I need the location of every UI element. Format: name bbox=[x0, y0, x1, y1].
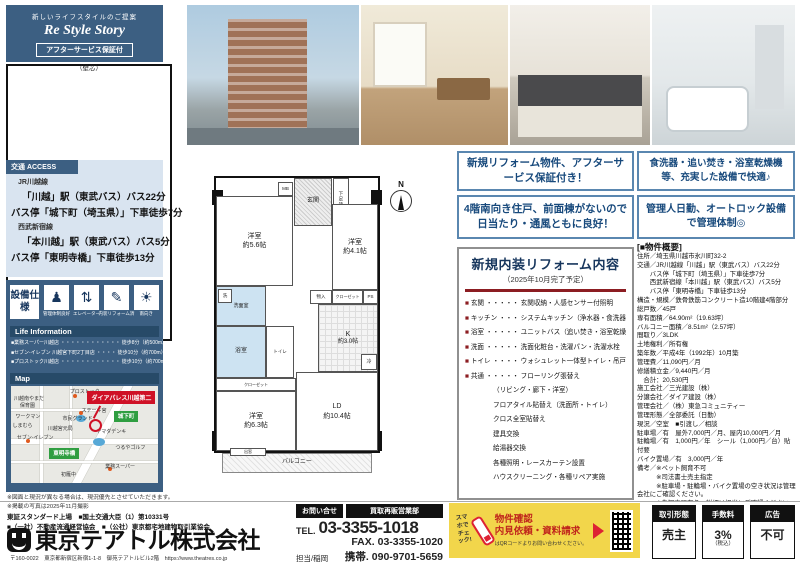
qr-text-line3: はQRコードよりお問い合わせください。 bbox=[495, 540, 587, 547]
reform-items: 玄関 ・・・・・ 玄関収納・人感センサー付照明キッチン ・・・ システムキッチン… bbox=[465, 297, 626, 380]
overview-title: [■物件概要] bbox=[637, 241, 796, 253]
compass: N bbox=[388, 180, 414, 212]
overview-line: ※駐車場・駐輪場・バイク置場の空き状況は管理会社にご確認ください。 bbox=[637, 483, 796, 501]
overview-line: 駐輪場／有 1,000円／年 シール（1,000円／台）貼付要 bbox=[637, 438, 796, 456]
department-label: 買取再販営業部 bbox=[346, 504, 443, 518]
photo-exterior-building bbox=[228, 19, 307, 128]
deal-type-box: 取引形態 売主 bbox=[652, 505, 696, 559]
equipment-label: 内装リフォーム済 bbox=[99, 311, 135, 317]
equipment-tile: ☀ 南向き bbox=[133, 285, 159, 317]
access-line: バス停「城下町（埼玉県）」下車徒歩7分 bbox=[6, 205, 163, 219]
map-notes: ※図面と現況が異なる場合は、現況優先とさせていただきます。※掲載の写真は2025… bbox=[7, 494, 297, 511]
access-box: 交通 ACCESS JR川越線 「川越」駅（東武バス）バス22分 バス停「城下町… bbox=[6, 160, 163, 277]
bay-window: 出窓 bbox=[230, 448, 266, 456]
equipment-tile: ⇅ エレベーター bbox=[73, 285, 99, 317]
photo-exterior-road bbox=[187, 128, 359, 145]
equipment-title: 設備仕様 bbox=[10, 285, 39, 319]
elevator-icon: ⇅ bbox=[74, 285, 99, 310]
qr-text-line1: 物件確認 bbox=[495, 514, 587, 526]
map-property-label: ダイアパレス川越第二 bbox=[87, 391, 155, 404]
reform-box: 新規内装リフォーム内容 （2025年10月完了予定） 玄関 ・・・・・ 玄関収納… bbox=[457, 247, 634, 500]
reform-extras: （リビング・廊下・洋室）フロアタイル貼替え（洗面所・トイレ）クロス全室貼替え建具… bbox=[465, 384, 626, 481]
overview-line: 総戸数／45戸 bbox=[637, 306, 796, 315]
floor-plan: 玄関 MB 下足箱 洋室約5.6帖 洋室約4.1帖 物入 クローゼット PS 洗… bbox=[214, 176, 382, 476]
flyer-page: 新しいライフスタイルのご提案 Re Style Story アフターサービス保証… bbox=[0, 0, 800, 565]
logo-eye bbox=[12, 533, 16, 538]
smartphone-icon bbox=[470, 515, 496, 547]
equipment-row: 設備仕様 ♟ 管理体制良好 ⇅ エレベーター ✎ 内装リフォーム済 ☀ 南向き bbox=[6, 280, 163, 321]
access-title: 交通 ACCESS bbox=[6, 160, 78, 174]
room-mb: MB bbox=[278, 182, 293, 196]
tel-number: 03-3355-1018 bbox=[319, 519, 419, 536]
room-ps: PS bbox=[363, 290, 378, 304]
photo-bathroom bbox=[652, 5, 795, 145]
logo-eye bbox=[22, 533, 26, 538]
brand-name: Re Style Story bbox=[6, 23, 163, 39]
room-storage: 物入 bbox=[310, 290, 332, 304]
reform-divider bbox=[465, 289, 626, 292]
overview-line: 現況／空室 ■引渡し／相談 bbox=[637, 421, 796, 430]
compass-n: N bbox=[388, 180, 414, 189]
access-line-pre: 西武新宿線 bbox=[6, 222, 163, 232]
company-logo-icon bbox=[7, 528, 31, 552]
life-info-list: ■業務スーパー川越店 ・・・・・・・・・・・・ 徒歩8分（約500m）■セブン-… bbox=[6, 339, 163, 368]
qr-code bbox=[610, 510, 633, 552]
life-info-item: ■業務スーパー川越店 ・・・・・・・・・・・・ 徒歩8分（約500m） bbox=[6, 339, 163, 349]
overview-box: [■物件概要] 住所／埼玉県川越市氷川町32-2交通／JR川越線「川越」駅（東武… bbox=[637, 241, 796, 501]
advertising-value: 不可 bbox=[751, 529, 794, 541]
balcony: バルコニー bbox=[222, 453, 372, 473]
commission-note: （税込） bbox=[703, 541, 743, 549]
brand-box: 新しいライフスタイルのご提案 Re Style Story アフターサービス保証… bbox=[6, 5, 163, 62]
company-logo-row: 東京テアトル株式会社 bbox=[7, 528, 260, 552]
access-line: バス停「東明寺橋」下車徒歩13分 bbox=[6, 250, 163, 264]
photo-living-window bbox=[373, 22, 427, 88]
reform-extra-item: クロス全室貼替え bbox=[493, 413, 626, 423]
highlight-box-1: 新規リフォーム物件、アフターサービス保証付き！ bbox=[457, 151, 634, 191]
photo-exterior bbox=[187, 5, 359, 145]
overview-line: バス停「東明寺橋」下車徒歩13分 bbox=[637, 288, 796, 297]
overview-line: 管理費／11,090円／月 bbox=[637, 359, 796, 368]
pillar bbox=[371, 190, 382, 205]
map-landmark: つるやゴルフ bbox=[115, 444, 145, 451]
overview-line: 交通／JR川越線「川越」駅（東武バス）バス22分 bbox=[637, 262, 796, 271]
deal-type-label: 取引形態 bbox=[653, 506, 695, 522]
area-map: プロストック川越南やまだ保育園ステーキ宮ワークマンしまむらセブン-イレブン川越宮… bbox=[11, 386, 158, 483]
map-landmark: 保育園 bbox=[20, 402, 35, 409]
map-landmark: しまむら bbox=[12, 422, 32, 429]
access-line-pre: JR川越線 bbox=[6, 177, 163, 187]
overview-line: 施工会社／三光建設（株） bbox=[637, 385, 796, 394]
manager-icon: ♟ bbox=[44, 285, 69, 310]
map-landmark: 初雁中 bbox=[61, 471, 76, 478]
map-title: Map bbox=[10, 373, 159, 384]
commission-box: 手数料 3% （税込） bbox=[702, 505, 744, 559]
deal-type-value: 売主 bbox=[653, 529, 695, 541]
overview-line: 備考／※ペット飼育不可 bbox=[637, 465, 796, 474]
fax-label: FAX. bbox=[351, 536, 374, 548]
photo-living bbox=[361, 5, 508, 145]
map-bus-stop: 東明寺橋 bbox=[49, 448, 79, 459]
advertising-box: 広告 不可 bbox=[750, 505, 795, 559]
mobile-label: 携帯. bbox=[345, 551, 369, 563]
reform-extra-item: 建具交換 bbox=[493, 428, 626, 438]
room-washer: 洗 bbox=[218, 289, 232, 303]
highlight-box-2: 4階南向き住戸、前面棟がないので日当たり・通風ともに良好！ bbox=[457, 195, 634, 239]
map-landmark: セブン-イレブン bbox=[17, 434, 54, 441]
access-line: 「川越」駅（東武バス）バス22分 bbox=[6, 189, 163, 203]
reform-item: トイレ ・・・・ ウォシュレット一体型トイレ・吊戸棚 bbox=[465, 355, 626, 365]
life-info-item: ■セブン-イレブン 川越宮下町2丁目店 ・・・・ 徒歩10分（約700m） bbox=[6, 349, 163, 359]
note-line: ※掲載の写真は2025年11月撮影 bbox=[7, 503, 297, 512]
reform-item: 洗面 ・・・・・ 洗面化粧台・洗濯パン・洗濯水栓 bbox=[465, 341, 626, 351]
room-closet-2: クローゼット bbox=[216, 378, 296, 391]
listing-line: 東証スタンダード上場 ■国土交通大臣（1）第10331号 bbox=[7, 513, 307, 523]
property-spec: 3LDK 64.90 （壁芯） m² bbox=[6, 130, 163, 156]
property-name-box: ダイアパレス川越第二 3LDK 64.90 （壁芯） m² bbox=[6, 64, 163, 148]
commission-label: 手数料 bbox=[703, 506, 743, 522]
logo-mouth bbox=[12, 540, 26, 550]
life-info-title: Life Information bbox=[10, 326, 159, 337]
reform-extra-item: ハウスクリーニング・各種リペア実施 bbox=[493, 471, 626, 481]
reform-icon: ✎ bbox=[104, 285, 129, 310]
room-western-4-1: 洋室約4.1帖 bbox=[332, 204, 378, 290]
reform-item: 共通 ・・・・・ フローリング張替え bbox=[465, 370, 626, 380]
facility-panel: 設備仕様 ♟ 管理体制良好 ⇅ エレベーター ✎ 内装リフォーム済 ☀ 南向き … bbox=[6, 280, 163, 492]
compass-ring bbox=[390, 190, 412, 212]
reform-item: キッチン ・・・ システムキッチン（浄水器・食洗器付） bbox=[465, 312, 626, 322]
smartphone-check-text: スマホで チェック! bbox=[454, 514, 473, 547]
room-western-5-6: 洋室約5.6帖 bbox=[216, 196, 293, 286]
overview-line: 西武新宿線「本川越」駅（東武バス）バス5分 bbox=[637, 279, 796, 288]
overview-line: 構造・規模／鉄骨鉄筋コンクリート造10階建4階部分 bbox=[637, 297, 796, 306]
map-bus-stop: 城下町 bbox=[114, 411, 139, 422]
reform-subtitle: （2025年10月完了予定） bbox=[465, 274, 626, 285]
room-closet: クローゼット bbox=[332, 290, 363, 304]
after-service-badge: アフターサービス保証付 bbox=[36, 43, 133, 57]
map-landmark: 業務スーパー bbox=[105, 463, 135, 470]
commission-value: 3% bbox=[703, 529, 743, 541]
equipment-tile: ✎ 内装リフォーム済 bbox=[103, 285, 129, 317]
reform-item: 浴室 ・・・・・ ユニットバス（追い焚き・浴室乾燥機付） bbox=[465, 326, 626, 336]
arrow-right-icon bbox=[593, 523, 604, 539]
overview-line: 管理会社／（株）東急コミュニティー bbox=[637, 403, 796, 412]
bottom-divider bbox=[0, 501, 800, 502]
brand-tagline: 新しいライフスタイルのご提案 bbox=[6, 5, 163, 21]
overview-line: ※司法書士売主指定 bbox=[637, 474, 796, 483]
map-landmark: 川越宮元局 bbox=[48, 425, 73, 432]
photo-bathroom-tub bbox=[666, 86, 749, 132]
compass-needle-icon bbox=[398, 195, 404, 210]
room-living-dining: LD約10.4帖 bbox=[296, 372, 378, 451]
reform-extra-item: （リビング・廊下・洋室） bbox=[493, 384, 626, 394]
contact-person: 担当/稲岡 bbox=[296, 553, 328, 564]
room-western-6-3: 洋室約6.3帖 bbox=[216, 391, 296, 451]
map-landmark: ワークマン bbox=[15, 413, 40, 420]
equipment-tile: ♟ 管理体制良好 bbox=[43, 285, 69, 317]
reform-title: 新規内装リフォーム内容 bbox=[465, 254, 626, 273]
overview-line: 間取り／3LDK bbox=[637, 332, 796, 341]
equipment-label: エレベーター bbox=[73, 311, 100, 317]
highlight-box-3: 食洗器・追い焚き・浴室乾燥機等、充実した設備で快適♪ bbox=[637, 151, 795, 191]
overview-line: 住所／埼玉県川越市氷川町32-2 bbox=[637, 253, 796, 262]
photo-kitchen-counter bbox=[518, 75, 641, 106]
inquiry-label: お問い合せ bbox=[296, 504, 343, 518]
map-road bbox=[11, 461, 158, 463]
advertising-label: 広告 bbox=[751, 506, 794, 522]
life-info-item: ■プロストック川越店 ・・・・・・・・・・・・ 徒歩10分（約700m） bbox=[6, 358, 163, 368]
room-entrance: 玄関 bbox=[294, 178, 332, 226]
room-fridge: 冷 bbox=[361, 354, 377, 370]
highlight-box-4: 管理人日勤、オートロック設備で管理体制◎ bbox=[637, 195, 795, 239]
map-landmark: 市民グランド bbox=[62, 415, 92, 422]
reform-extra-item: 給湯器交換 bbox=[493, 442, 626, 452]
mobile-number: 090-9701-5659 bbox=[372, 551, 443, 563]
reform-item: 玄関 ・・・・・ 玄関収納・人感センサー付照明 bbox=[465, 297, 626, 307]
overview-line: 修繕積立金／9,440円／月 bbox=[637, 368, 796, 377]
company-name: 東京テアトル株式会社 bbox=[35, 529, 260, 552]
fax-number: 03-3355-1020 bbox=[378, 536, 443, 548]
equipment-label: 南向き bbox=[139, 311, 153, 317]
overview-line: 築年数／平成4年（1992年）10月築 bbox=[637, 350, 796, 359]
photo-kitchen-cabinet bbox=[518, 106, 641, 137]
reform-extra-item: フロアタイル貼替え（洗面所・トイレ） bbox=[493, 399, 626, 409]
photo-living-table bbox=[437, 78, 490, 100]
overview-line: 土地権利／所有権 bbox=[637, 341, 796, 350]
overview-list: 住所／埼玉県川越市氷川町32-2交通／JR川越線「川越」駅（東武バス）バス22分… bbox=[637, 253, 796, 501]
equipment-label: 管理体制良好 bbox=[43, 311, 70, 317]
company-address: 〒160-0022 東京都新宿区新宿1-1-8 御苑テアトルビル2階 https… bbox=[10, 554, 300, 562]
reform-extra-item: 各種照明・レースカーテン設置 bbox=[493, 457, 626, 467]
qr-text-line2: 内見依頼・資料請求 bbox=[495, 526, 587, 538]
room-toilet: トイレ bbox=[266, 326, 294, 378]
map-water bbox=[93, 438, 105, 446]
overview-line: 管理形態／全部委託（日勤） bbox=[637, 412, 796, 421]
tel-label: TEL. bbox=[296, 526, 316, 536]
smartphone-screen bbox=[483, 534, 491, 541]
contact-block: お問い合せ 買取再販営業部 TEL. 03-3355-1018 FAX. 03-… bbox=[296, 504, 443, 565]
access-line: 「本川越」駅（東武バス）バス5分 bbox=[6, 234, 163, 248]
overview-line: バイク置場／有 3,000円／年 bbox=[637, 456, 796, 465]
photo-bathroom-panel bbox=[755, 25, 784, 109]
qr-inquiry-box: スマホで チェック! 物件確認 内見依頼・資料請求 はQRコードよりお問い合わせ… bbox=[449, 503, 640, 558]
overview-line: 分譲会社／ダイア建設（株） bbox=[637, 394, 796, 403]
photo-kitchen bbox=[510, 5, 650, 145]
room-bath: 浴室 bbox=[216, 326, 266, 378]
sun-icon: ☀ bbox=[134, 285, 159, 310]
overview-line: 専有面積／64.90m²（19.63坪） bbox=[637, 315, 796, 324]
